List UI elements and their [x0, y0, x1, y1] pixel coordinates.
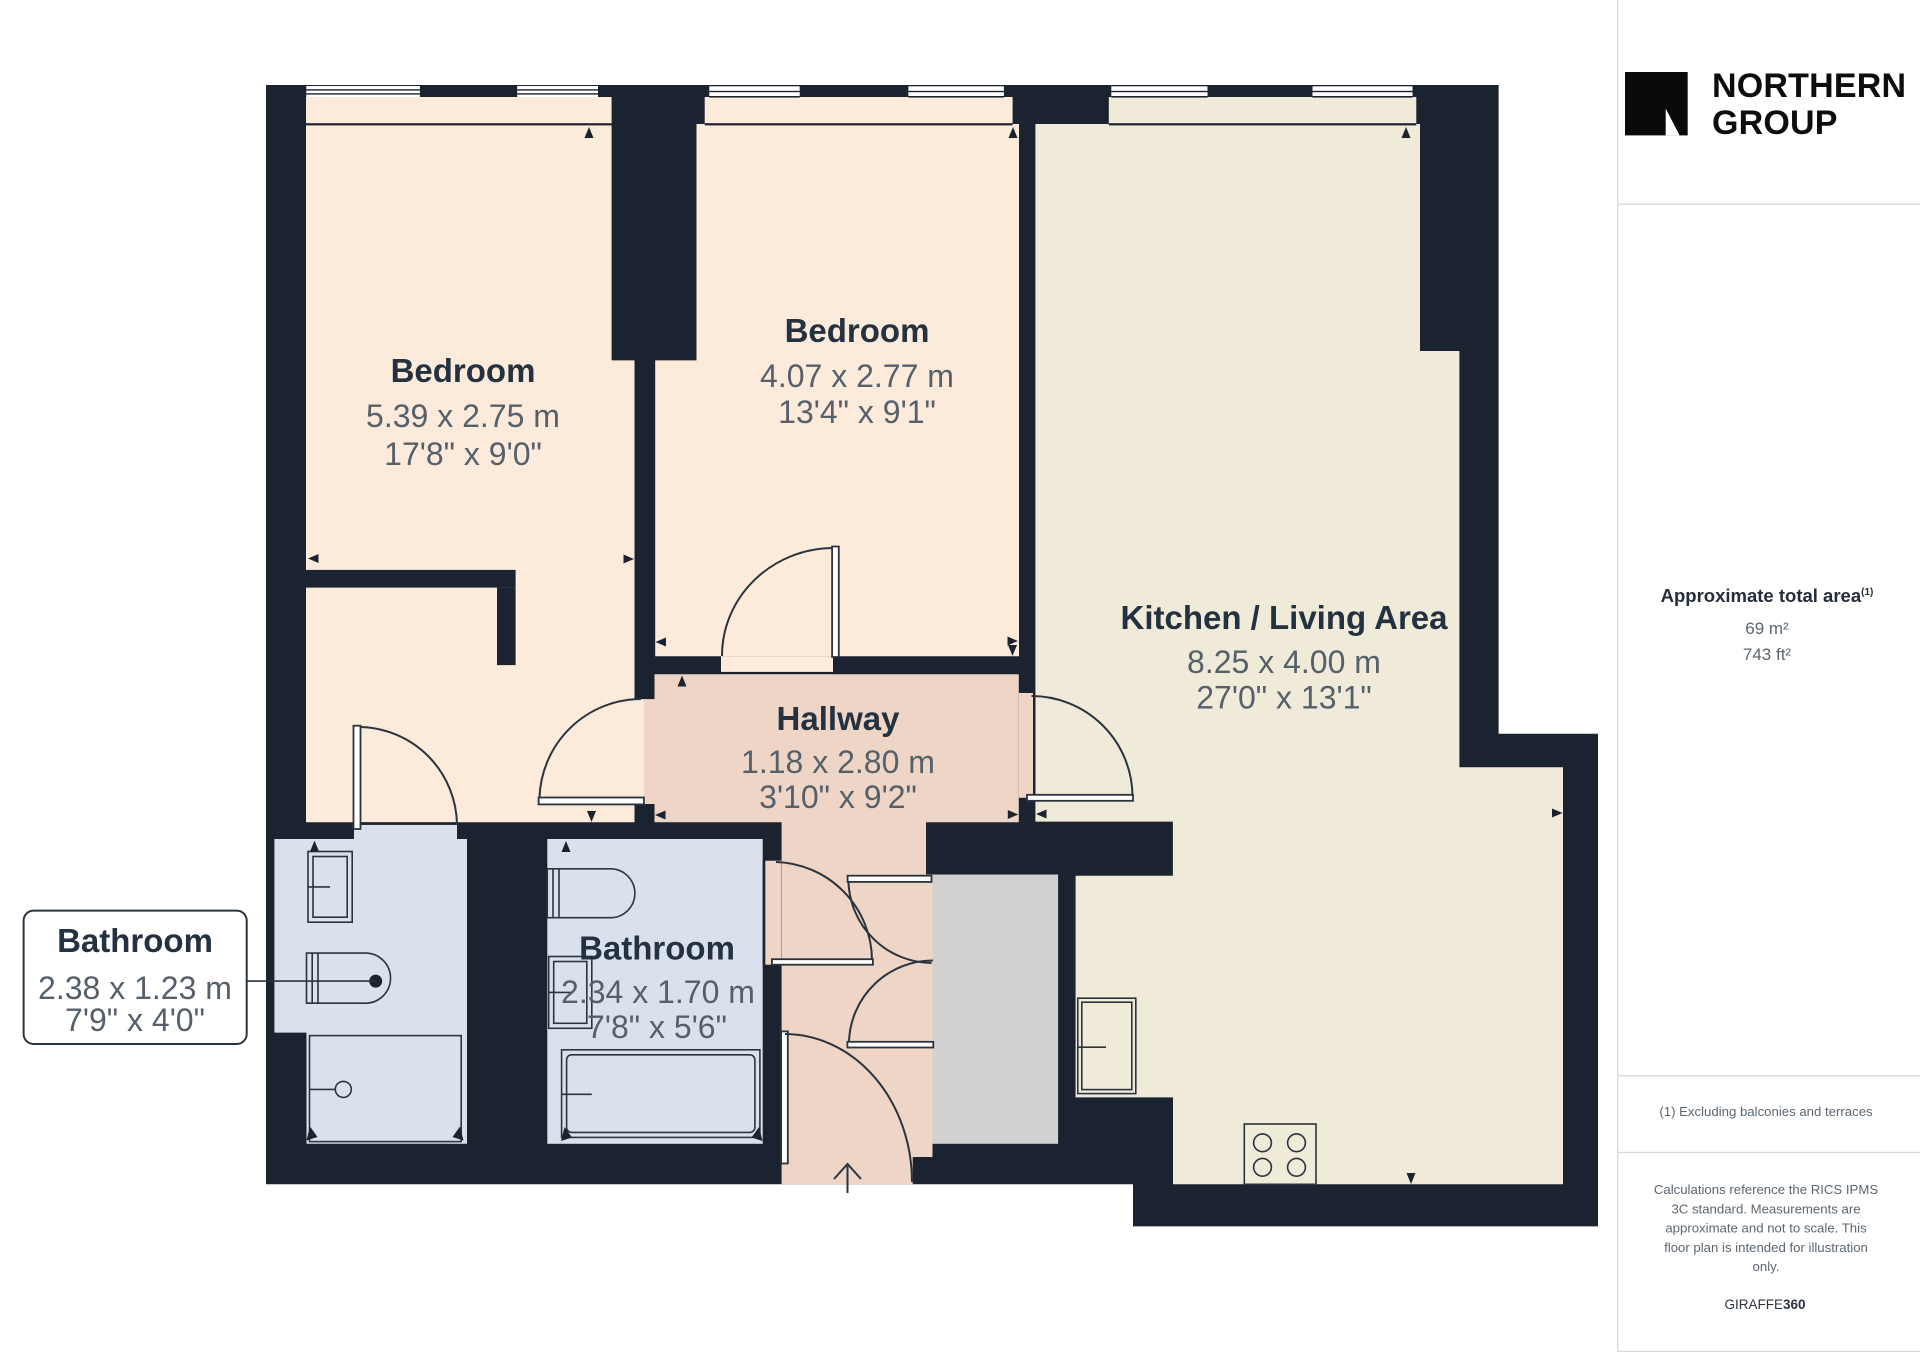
- svg-text:(1) Excluding balconies and te: (1) Excluding balconies and terraces: [1659, 1104, 1873, 1119]
- svg-text:GROUP: GROUP: [1712, 104, 1838, 142]
- svg-text:Bathroom: Bathroom: [57, 922, 213, 959]
- svg-text:2.38 x 1.23 m: 2.38 x 1.23 m: [38, 970, 232, 1006]
- svg-text:Approximate total area(1): Approximate total area(1): [1661, 585, 1874, 606]
- svg-text:Bedroom: Bedroom: [785, 312, 930, 349]
- svg-text:69 m²: 69 m²: [1745, 619, 1789, 638]
- svg-text:Bathroom: Bathroom: [579, 930, 735, 967]
- svg-text:2.34 x 1.70 m: 2.34 x 1.70 m: [561, 974, 755, 1010]
- svg-text:GIRAFFE360: GIRAFFE360: [1724, 1297, 1805, 1312]
- svg-text:3C standard. Measurements are: 3C standard. Measurements are: [1671, 1201, 1860, 1216]
- svg-text:743 ft²: 743 ft²: [1743, 645, 1792, 664]
- svg-text:Bedroom: Bedroom: [391, 352, 536, 389]
- svg-text:3'10" x 9'2": 3'10" x 9'2": [759, 779, 917, 815]
- svg-text:27'0" x 13'1": 27'0" x 13'1": [1196, 680, 1372, 716]
- svg-text:4.07 x 2.77 m: 4.07 x 2.77 m: [760, 358, 954, 394]
- svg-text:Kitchen / Living Area: Kitchen / Living Area: [1120, 599, 1448, 636]
- svg-text:7'9" x 4'0": 7'9" x 4'0": [65, 1002, 205, 1038]
- svg-text:17'8" x 9'0": 17'8" x 9'0": [384, 436, 542, 472]
- svg-text:Hallway: Hallway: [777, 700, 901, 737]
- svg-text:8.25 x 4.00 m: 8.25 x 4.00 m: [1187, 644, 1381, 680]
- svg-text:floor plan is intended for ill: floor plan is intended for illustration: [1664, 1240, 1868, 1255]
- svg-text:Calculations reference the RIC: Calculations reference the RICS IPMS: [1654, 1182, 1878, 1197]
- svg-text:7'8" x 5'6": 7'8" x 5'6": [587, 1009, 727, 1045]
- svg-text:13'4" x 9'1": 13'4" x 9'1": [778, 394, 936, 430]
- svg-text:NORTHERN: NORTHERN: [1712, 67, 1906, 105]
- svg-text:5.39 x 2.75 m: 5.39 x 2.75 m: [366, 398, 560, 434]
- svg-text:only.: only.: [1753, 1259, 1780, 1274]
- svg-text:1.18 x 2.80 m: 1.18 x 2.80 m: [741, 744, 935, 780]
- svg-text:approximate and not to scale.: approximate and not to scale. This: [1665, 1221, 1867, 1236]
